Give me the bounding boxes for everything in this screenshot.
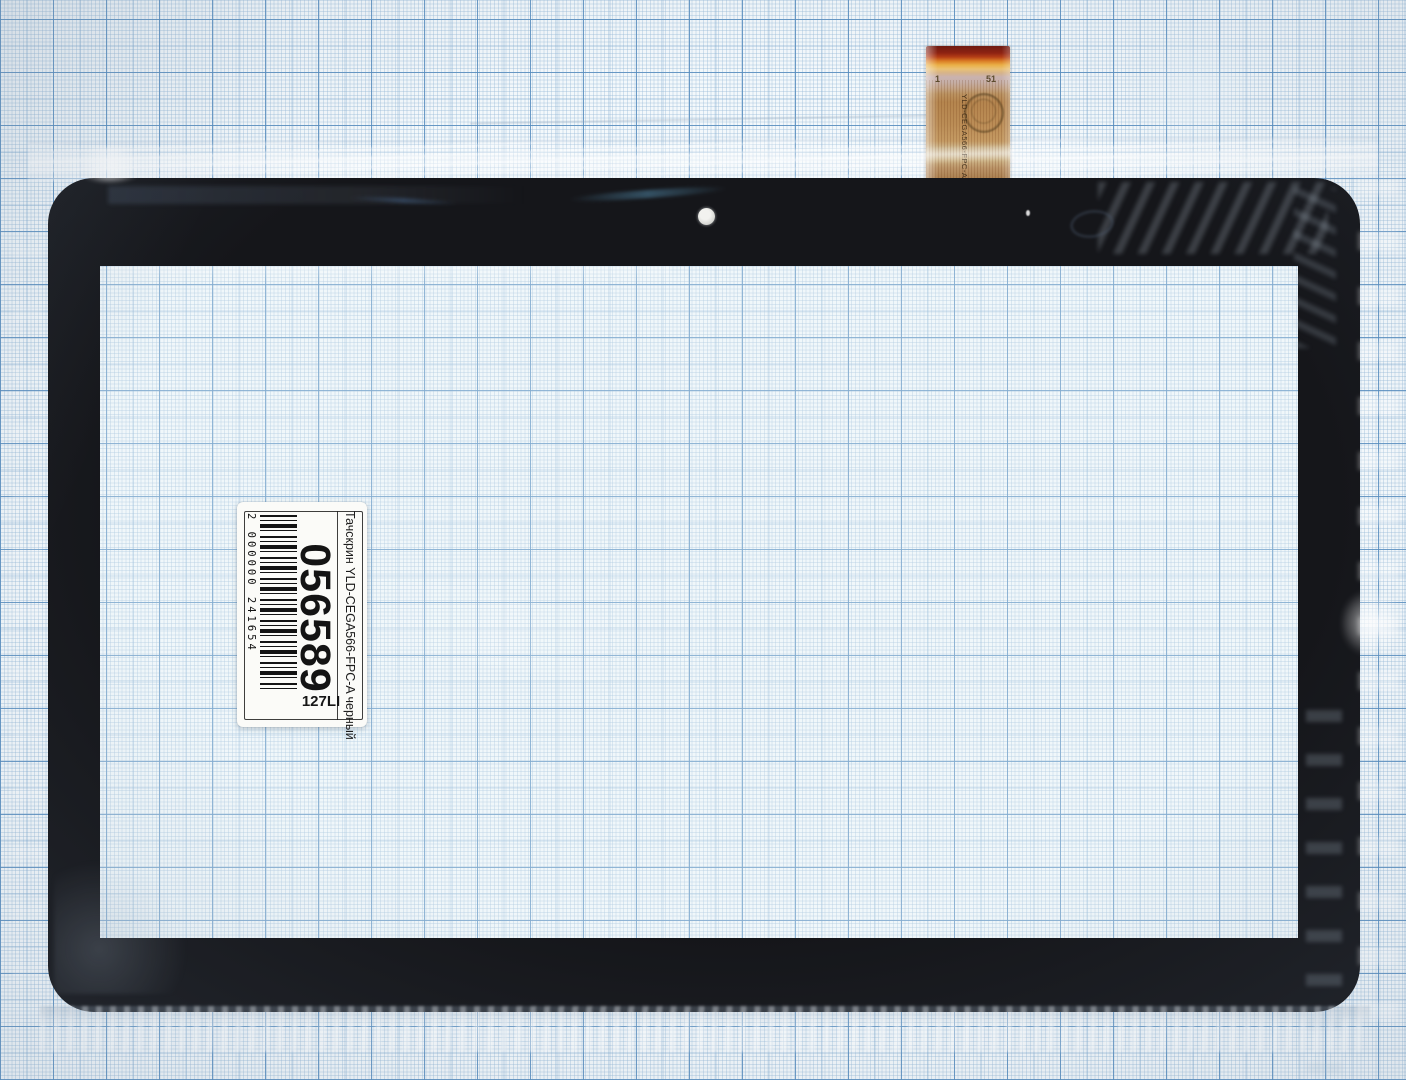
bezel-sheen (108, 186, 528, 204)
wrap-crinkle-top-right (1098, 182, 1328, 254)
dust-speck (1026, 210, 1030, 216)
bezel-scuff-right (1306, 698, 1342, 1080)
barcode-number: 2 000000 241654 (244, 513, 258, 691)
camera-hole (698, 208, 715, 225)
cable-pin-1-label: 1 (935, 74, 940, 84)
bezel-sheen-bottom-left (54, 844, 204, 994)
flex-cable: 1 51 YLD-CEGA566-FPC-A0 (926, 46, 1010, 196)
cable-model-text: YLD-CEGA566-FPC-A0 (958, 94, 970, 182)
product-description: Тачскрин YLD-CEGA566-FPC-A черный (338, 511, 362, 720)
serial-number: 056589 (294, 534, 336, 702)
cable-pin-51-label: 51 (986, 74, 996, 84)
product-photo: 1 51 YLD-CEGA566-FPC-A0 2 000000 241654 … (0, 0, 1406, 1080)
barcode-sticker: 2 000000 241654 056589 127LI Тачскрин YL… (237, 502, 367, 727)
cable-wrap-reflection (922, 144, 1015, 163)
